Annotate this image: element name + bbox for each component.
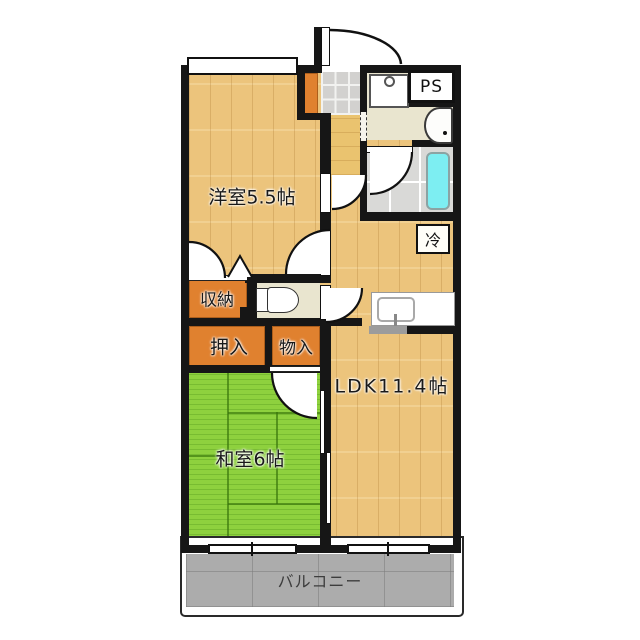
bathroom-door-leaf — [366, 146, 413, 153]
pipe-space-label: PS — [420, 77, 443, 97]
wall-kitchen-base — [407, 326, 461, 334]
kitchen-counter-edge — [369, 326, 407, 334]
sliding-panel — [326, 452, 331, 524]
ldk-label: LDK11.4帖 — [335, 372, 450, 399]
oshiire-label: 押入 — [210, 333, 248, 360]
toilet-bowl — [267, 287, 299, 313]
wall-toilet-top — [245, 274, 325, 283]
basin-drain — [443, 131, 447, 135]
entrance-door-leaf — [321, 27, 330, 66]
refrigerator-space-box: 冷 — [416, 224, 450, 254]
sliding-panel — [320, 390, 325, 454]
window-mullion — [251, 542, 253, 556]
washroom-door — [360, 112, 367, 141]
monoire-label: 物入 — [279, 334, 313, 359]
western-room-label: 洋室5.5帖 — [208, 183, 295, 210]
refrigerator-label: 冷 — [425, 227, 441, 251]
shuno-door-track — [189, 275, 247, 281]
wall-washroom-left — [360, 72, 367, 113]
bathroom-tile-line — [389, 147, 391, 212]
genkan-tiles — [321, 72, 361, 115]
western-room-door-leaf — [320, 231, 331, 276]
tatami-seam — [228, 503, 320, 505]
washing-machine-drain — [384, 76, 395, 87]
hall-door-leaf — [320, 173, 331, 213]
japanese-room-doorway — [270, 366, 320, 372]
window-western-room — [187, 57, 298, 75]
hallway-floor — [331, 115, 360, 175]
wall-bathroom-bottom — [360, 212, 461, 221]
wall-hall-col — [320, 119, 331, 175]
toilet-door-leaf — [320, 285, 331, 320]
japanese-room-label: 和室6帖 — [215, 445, 284, 472]
tatami-seam — [228, 412, 320, 414]
wall-hall-col — [320, 213, 331, 233]
floor-plan-canvas: PS 冷 洋室5.5帖 収納 押入 物入 和室6帖 — [0, 0, 640, 640]
entrance-door-arc — [330, 30, 401, 64]
wash-basin — [424, 107, 453, 144]
bathtub — [426, 152, 450, 210]
pipe-space-box: PS — [408, 70, 455, 103]
window-mullion — [387, 542, 389, 556]
wall-oshiire-divider — [265, 322, 272, 367]
wall-left — [181, 65, 189, 553]
bathroom-tile-line — [419, 147, 421, 212]
balcony-label: バルコニー — [278, 568, 363, 592]
shuno-label: 収納 — [200, 286, 234, 311]
